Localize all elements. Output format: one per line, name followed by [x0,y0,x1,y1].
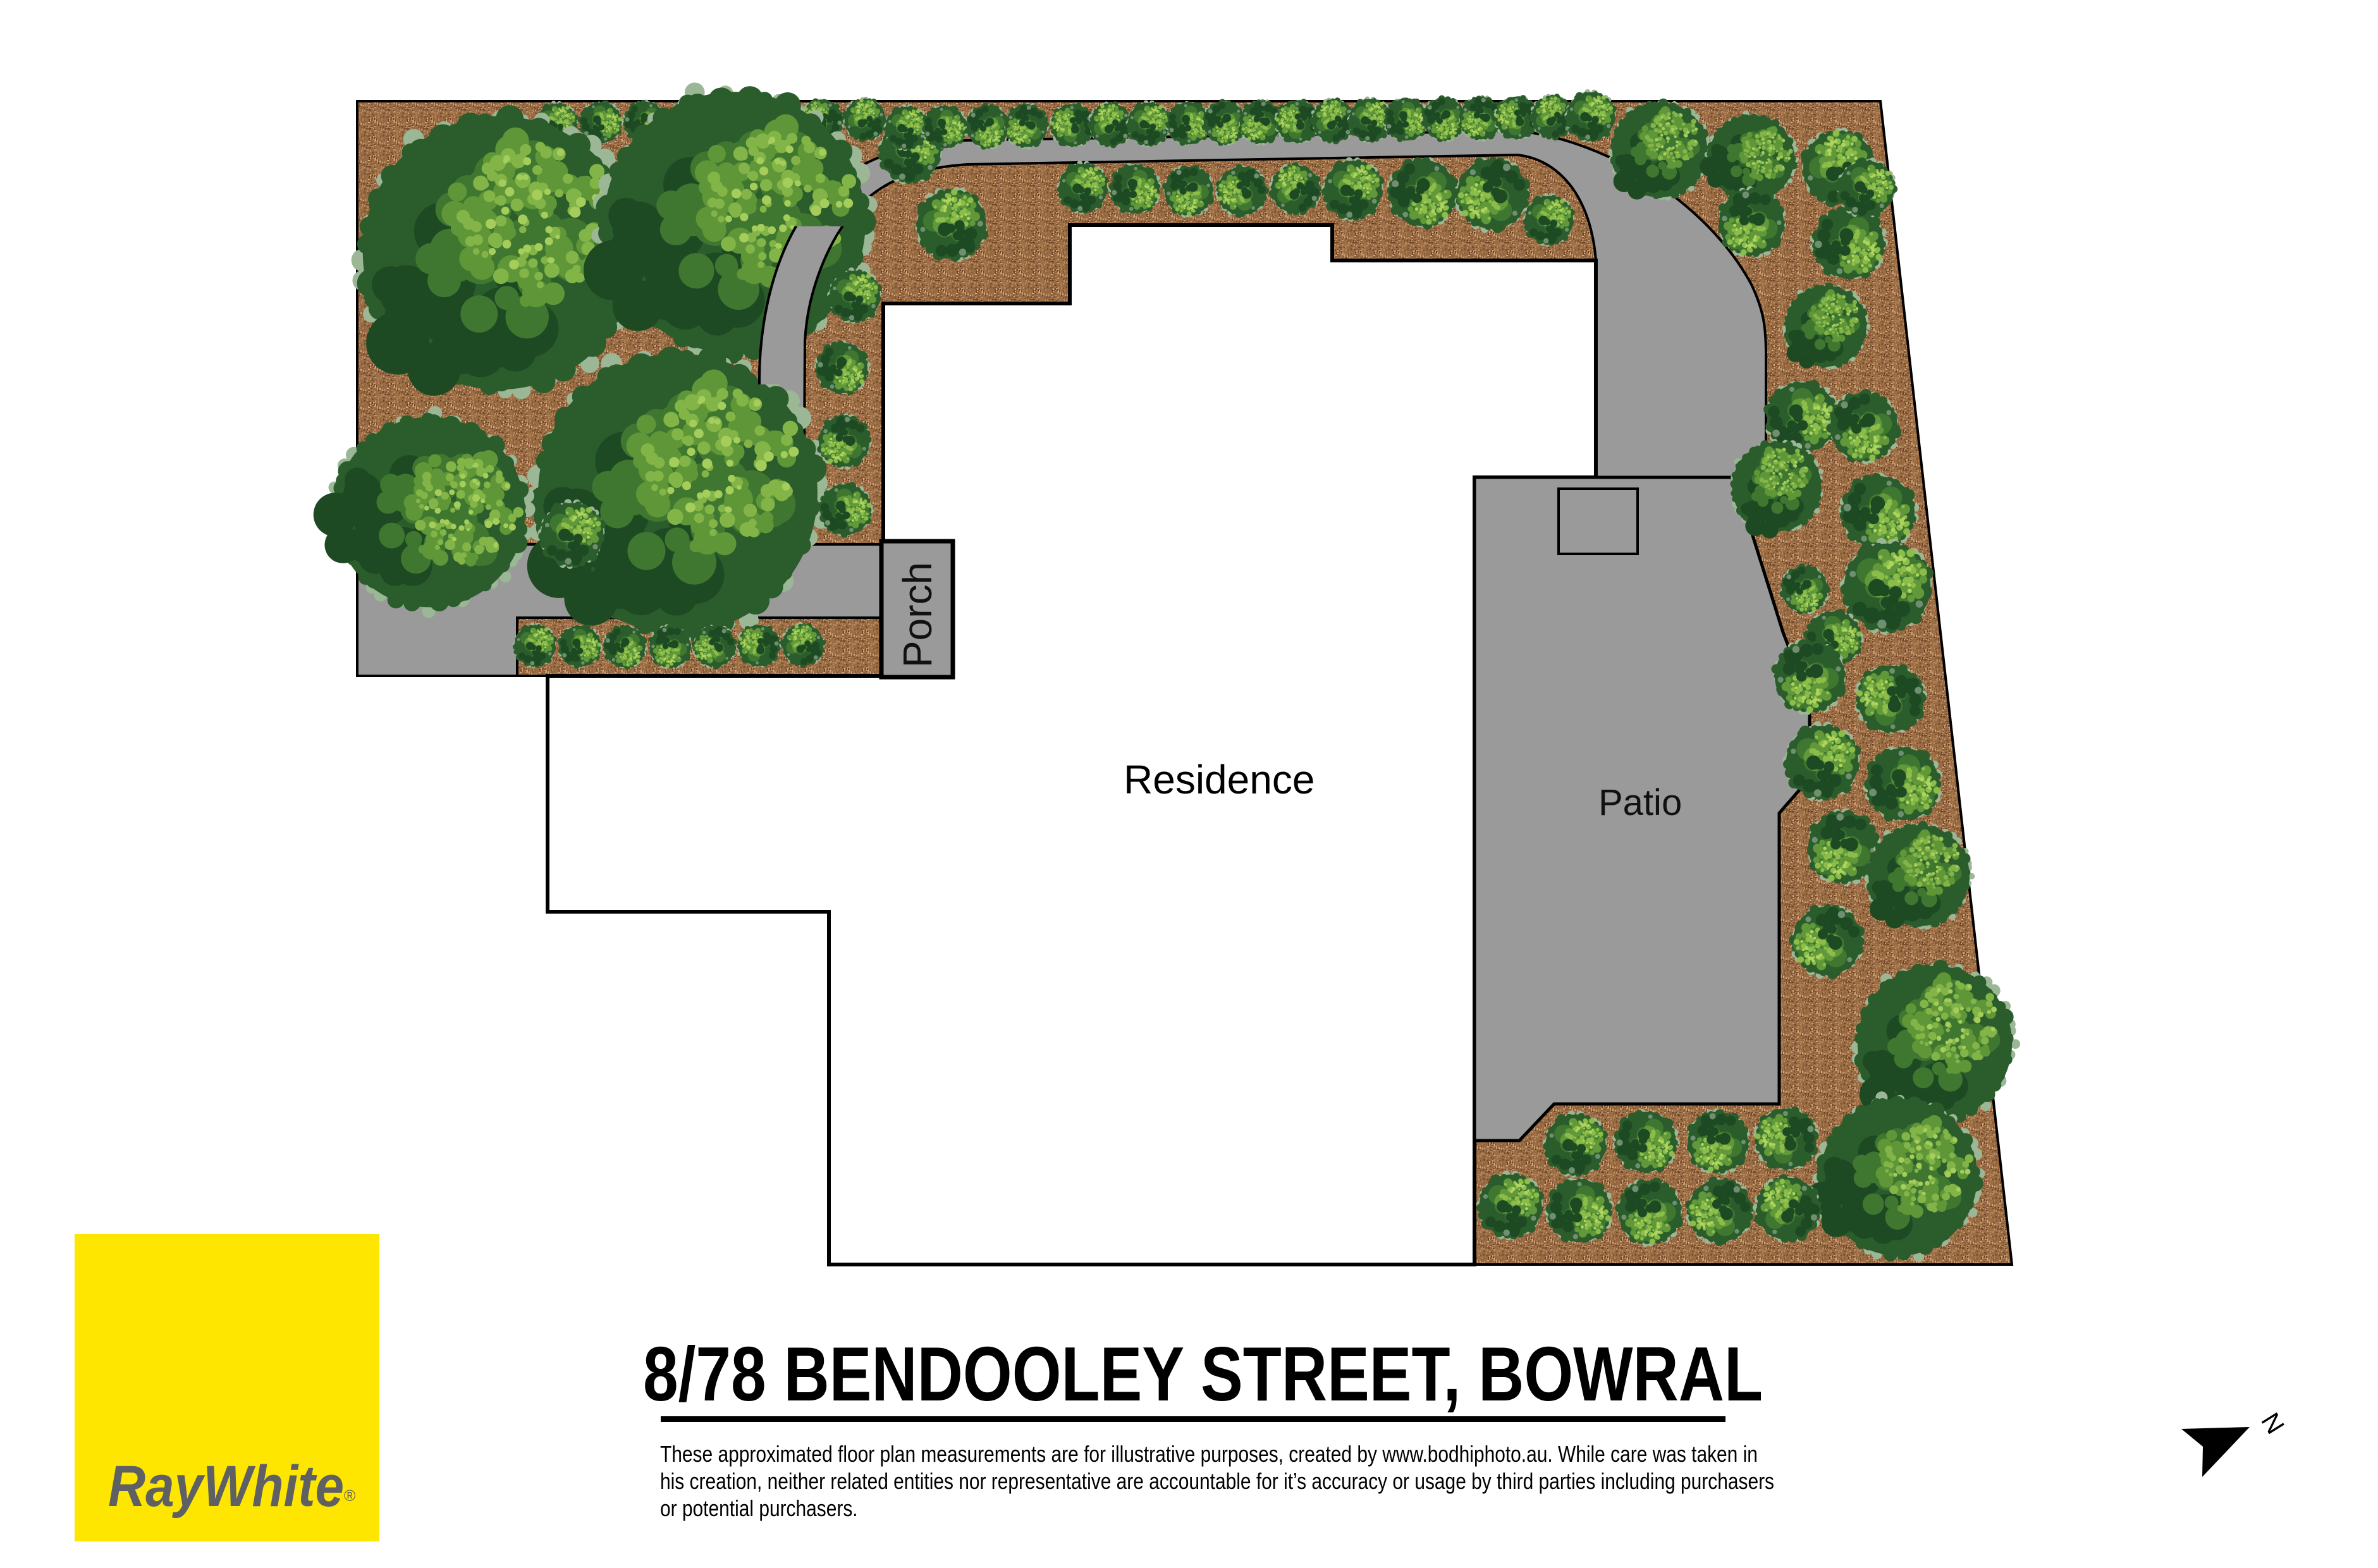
svg-text:or potential purchasers.: or potential purchasers. [660,1496,858,1521]
svg-text:Residence: Residence [1124,757,1315,802]
svg-text:®: ® [344,1487,356,1505]
svg-text:his creation, neither related: his creation, neither related entities n… [660,1469,1774,1494]
svg-text:Patio: Patio [1598,782,1682,823]
svg-text:Porch: Porch [895,562,940,668]
svg-text:8/78 BENDOOLEY STREET, BOWRAL: 8/78 BENDOOLEY STREET, BOWRAL [643,1331,1763,1418]
svg-text:RayWhite: RayWhite [108,1454,344,1519]
svg-text:These approximated floor plan: These approximated floor plan measuremen… [660,1442,1758,1467]
